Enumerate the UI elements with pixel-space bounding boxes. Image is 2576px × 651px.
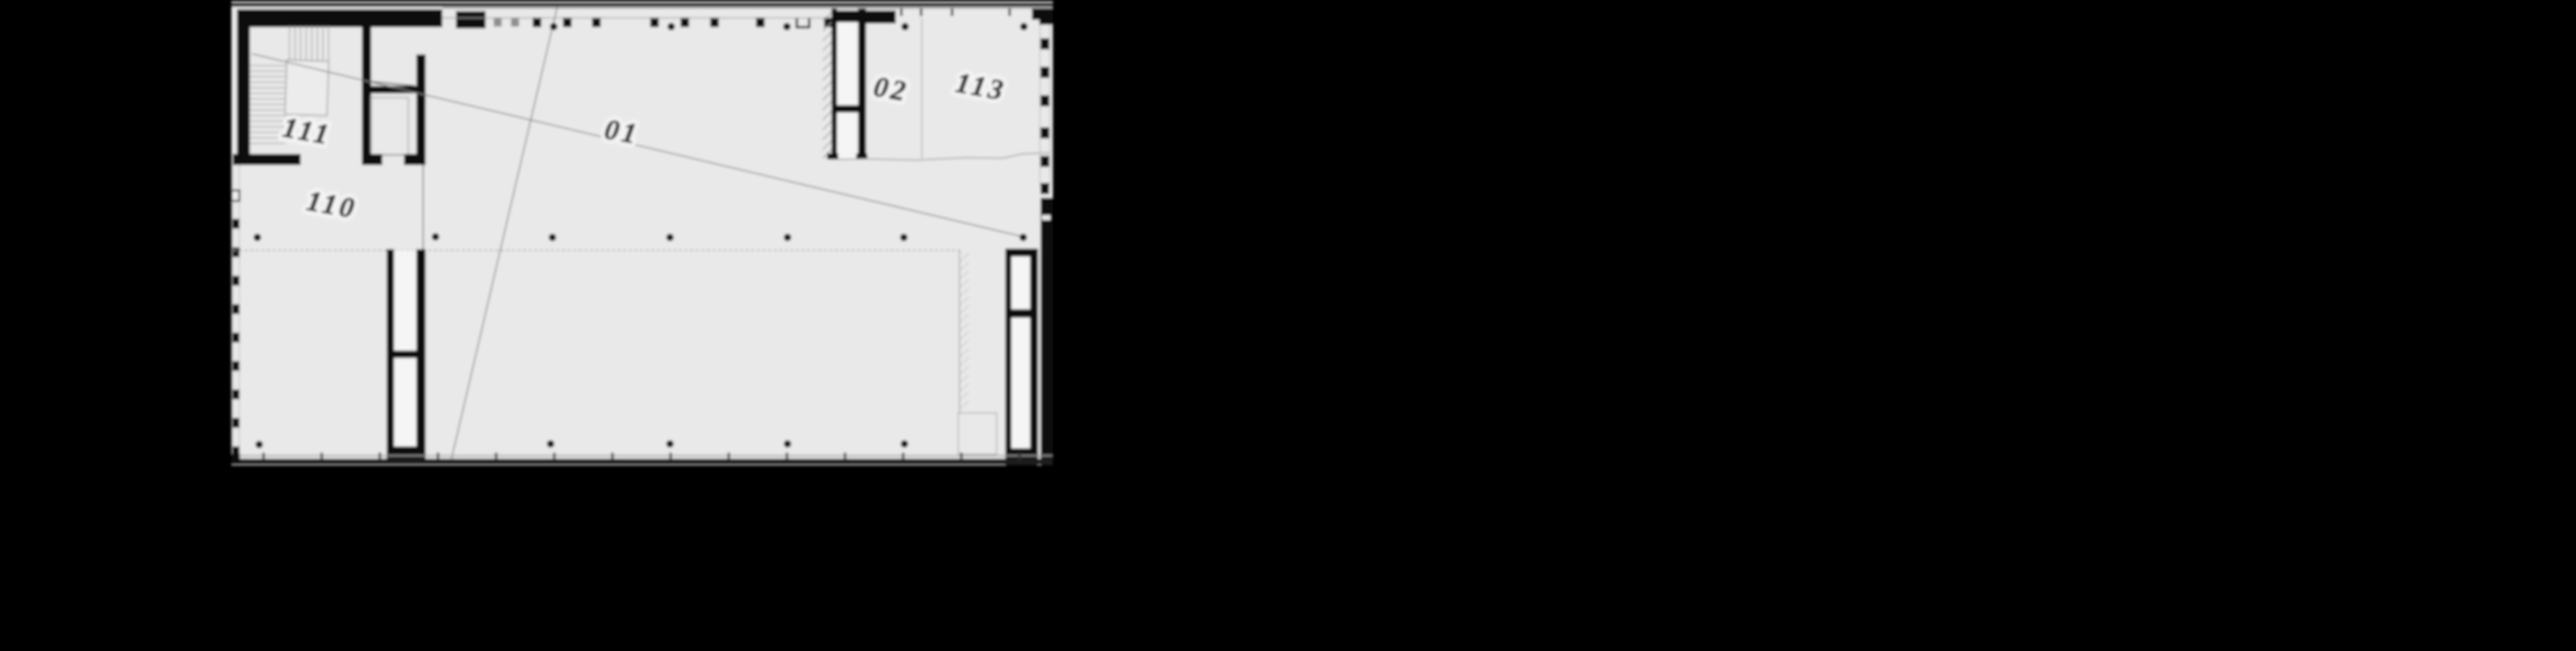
svg-text:01: 01 xyxy=(603,113,642,150)
svg-text:02: 02 xyxy=(872,70,911,108)
